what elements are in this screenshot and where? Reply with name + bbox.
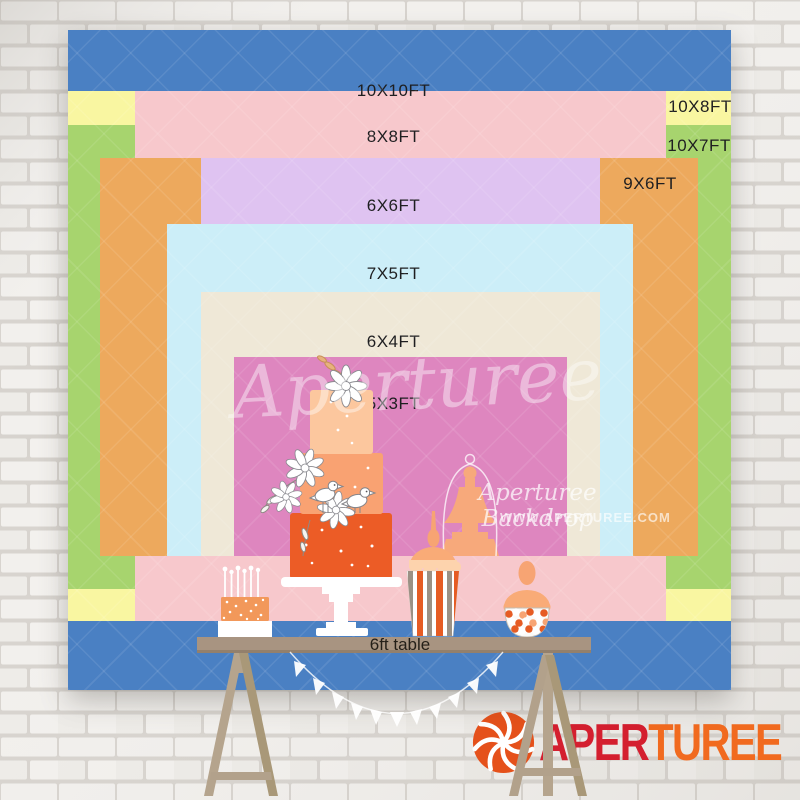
product-image: APERTUREE 10X10FT 8X8FT 10X8FT 10X7FT 6X… [0, 0, 800, 800]
popcorn-box [407, 511, 461, 636]
bunting-garland [290, 652, 503, 727]
table-size-label: 6ft table [340, 635, 460, 655]
candle-cake [218, 566, 272, 637]
left-easel [204, 645, 278, 796]
right-easel [509, 645, 587, 796]
silhouette-jar [441, 455, 499, 557]
cake-stand [281, 577, 402, 636]
tiered-cake [260, 355, 402, 636]
dessert-table-scene [0, 0, 800, 800]
candy-jar [504, 561, 551, 637]
